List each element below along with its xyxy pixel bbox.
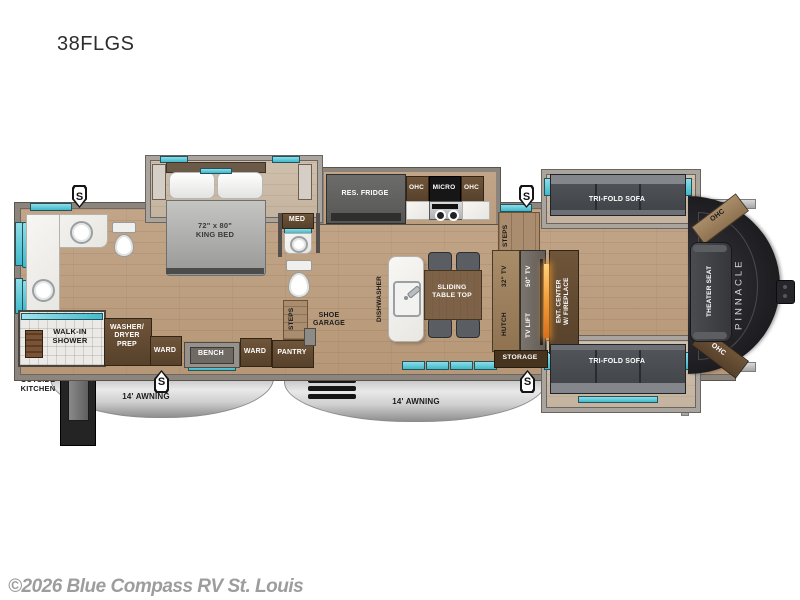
pantry-label: PANTRY	[272, 349, 312, 357]
entertainment-center-label: ENT. CENTER W/ FIREPLACE	[550, 254, 576, 348]
walk-in-shower-label: WALK-IN SHOWER	[40, 328, 100, 346]
mid-bath-toilet	[286, 260, 312, 298]
residential-fridge	[326, 174, 406, 224]
kitchen-window	[402, 361, 425, 370]
tv-lift-label: TV LIFT	[518, 302, 540, 348]
bench-label: BENCH	[184, 350, 238, 358]
awning-left-label: 14' AWNING	[100, 392, 192, 401]
med-cabinet-label: MED	[282, 216, 312, 224]
med-sink	[290, 236, 308, 253]
ohc-kitchen-right-label: OHC	[461, 184, 482, 192]
sofa-bottom-rear-window	[578, 396, 658, 403]
hutch-label: HUTCH	[492, 302, 518, 346]
brand-label: PINNACLE	[730, 246, 748, 342]
dinette-chair	[456, 252, 480, 272]
sticker-badge: S	[154, 370, 169, 393]
dinette-chair	[428, 318, 452, 338]
mid-bath-wall-right	[316, 213, 320, 253]
shoe-garage-label: SHOE GARAGE	[308, 312, 350, 329]
tri-fold-sofa-bottom-label: TRI-FOLD SOFA	[554, 358, 680, 366]
dishwasher-label: DISHWASHER	[374, 268, 386, 330]
dinette-chair	[428, 252, 452, 272]
bedroom-steps-label: STEPS	[286, 302, 298, 336]
washer-dryer-prep-label: WASHER/ DRYER PREP	[104, 324, 150, 349]
ward-right-label: WARD	[240, 348, 270, 356]
pillow	[169, 172, 215, 199]
storage-label: STORAGE	[494, 354, 546, 362]
bed-slide-window-right	[272, 156, 300, 163]
shoe-garage-steps	[304, 328, 316, 346]
ohc-kitchen-left-label: OHC	[406, 184, 427, 192]
tri-fold-sofa-bottom	[550, 344, 686, 394]
nightstand-right	[298, 164, 312, 200]
tri-fold-sofa-top	[550, 174, 686, 216]
bath-top-window	[30, 203, 72, 211]
sofa-top-window-right	[685, 178, 692, 196]
counter-right-of-stove	[462, 201, 490, 220]
king-bed-label: 72" x 80" KING BED	[166, 222, 264, 240]
tri-fold-sofa-top-label: TRI-FOLD SOFA	[554, 196, 680, 204]
sticker-badge: S	[519, 185, 534, 208]
kitchen-window	[426, 361, 449, 370]
bath-toilet	[112, 222, 136, 256]
copyright-text: ©2026 Blue Compass RV St. Louis	[8, 576, 303, 598]
island-sink	[393, 281, 421, 317]
awning-right-label: 14' AWNING	[370, 397, 462, 406]
theater-seat-label: THEATER SEAT	[702, 252, 718, 330]
kitchen-window	[450, 361, 473, 370]
microwave-label: MICRO	[429, 184, 459, 192]
counter-left-of-stove	[406, 201, 430, 220]
stove	[429, 201, 463, 220]
dinette-chair	[456, 318, 480, 338]
sticker-badge: S	[72, 185, 87, 208]
hitch-pin	[776, 280, 795, 304]
bath-sink-2	[32, 279, 55, 302]
living-steps-label: STEPS	[500, 216, 512, 256]
tv-32-label: 32" TV	[492, 254, 518, 298]
ward-left-label: WARD	[150, 347, 180, 355]
nightstand-left	[152, 164, 166, 200]
sliding-table-label: SLIDING TABLE TOP	[424, 284, 480, 300]
bath-sink-1	[70, 221, 93, 244]
sticker-badge: S	[520, 370, 535, 393]
page-title: 38FLGS	[57, 33, 134, 57]
fireplace-glow	[544, 264, 549, 338]
pillow	[217, 172, 263, 199]
tv-50-label: 50" TV	[518, 254, 540, 298]
residential-fridge-label: RES. FRIDGE	[326, 190, 404, 198]
